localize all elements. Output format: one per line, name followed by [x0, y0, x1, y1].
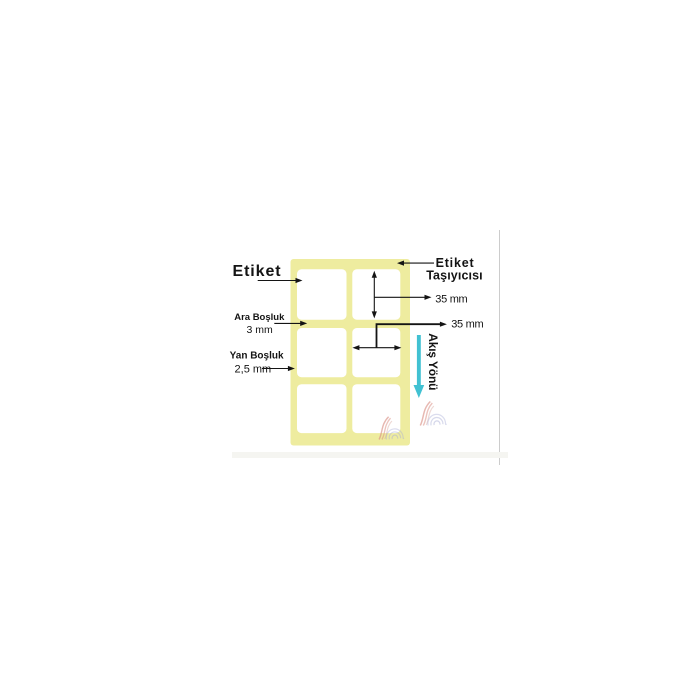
svg-text:3 mm: 3 mm — [246, 324, 273, 336]
svg-text:Taşıyıcısı: Taşıyıcısı — [426, 269, 483, 283]
svg-text:2,5 mm: 2,5 mm — [235, 364, 272, 376]
svg-text:35 mm: 35 mm — [451, 319, 483, 331]
svg-text:35 mm: 35 mm — [435, 293, 467, 305]
svg-text:Ara Boşluk: Ara Boşluk — [234, 312, 285, 323]
svg-text:Etiket: Etiket — [233, 263, 282, 280]
svg-text:Yan Boşluk: Yan Boşluk — [230, 351, 284, 362]
svg-text:Akış Yönü: Akış Yönü — [426, 333, 440, 390]
